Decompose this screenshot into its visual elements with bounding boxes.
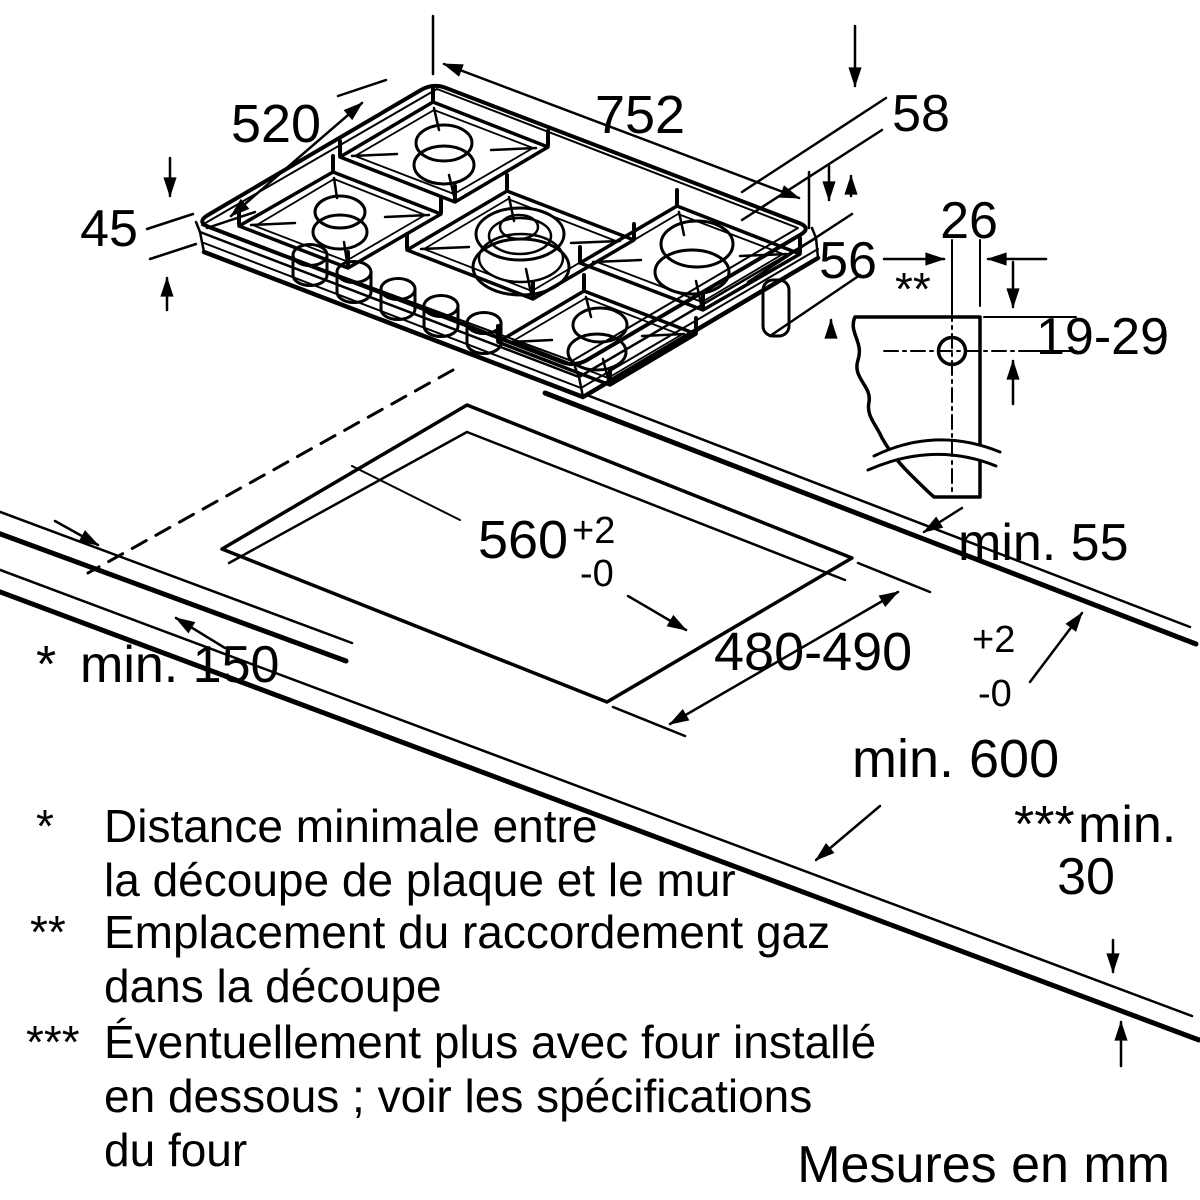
worktop-section-outline xyxy=(853,317,980,497)
units-note: Mesures en mm xyxy=(797,1136,1170,1194)
hob-width-label: 752 xyxy=(595,85,685,145)
side-clearance-marker: * xyxy=(36,636,56,694)
dimension-gas-offset-26: 26 ** xyxy=(884,192,1046,315)
dimension-cutout-width-560: 560 +2 -0 xyxy=(352,466,686,630)
thickness-value: 30 xyxy=(1057,848,1115,906)
footnote-3-line-3: du four xyxy=(104,1124,247,1176)
dimension-gas-height-19-29: 19-29 xyxy=(984,262,1169,404)
worktop-depth-label: min. 600 xyxy=(852,729,1059,789)
gas-offset-label: 26 xyxy=(940,192,998,250)
gas-connection-detail xyxy=(853,280,1028,497)
hob-body-depth-label: 58 xyxy=(892,85,950,143)
dimension-height-45: 45 xyxy=(80,158,196,310)
installation-diagram-page: 752 520 45 58 56 26 ** xyxy=(0,0,1200,1200)
worktop-side-edge-line xyxy=(0,510,352,643)
footnote-2-marker: ** xyxy=(30,906,66,958)
thickness-prefix: min. xyxy=(1078,796,1176,854)
dimension-rear-clearance-min55: min. 55 xyxy=(924,508,1129,572)
cutout-width-label: 560 xyxy=(478,510,568,570)
footnote-1-line-1: Distance minimale entre xyxy=(104,800,597,852)
installation-diagram: 752 520 45 58 56 26 ** xyxy=(0,0,1200,1200)
footnote-1-line-2: la découpe de plaque et le mur xyxy=(104,854,736,906)
footnote-1-marker: * xyxy=(36,800,54,852)
footnotes: * Distance minimale entre la découpe de … xyxy=(26,800,876,1176)
hob-height-label: 45 xyxy=(80,200,138,258)
cutout-width-tol-upper: +2 xyxy=(572,510,615,552)
rear-clearance-label: min. 55 xyxy=(958,514,1129,572)
hob-projection-dashed-line xyxy=(88,370,453,573)
hob-depth-label: 520 xyxy=(231,94,321,154)
footnote-2-line-1: Emplacement du raccordement gaz xyxy=(104,906,830,958)
side-clearance-label: min. 150 xyxy=(80,636,279,694)
dimension-side-clearance-min150: * min. 150 xyxy=(36,521,279,694)
gas-height-range-label: 19-29 xyxy=(1036,308,1169,366)
cutout-depth-label: 480-490 xyxy=(714,622,912,682)
hob-body-clearance-label: 56 xyxy=(819,232,877,290)
dimension-body-depth-58: 58 xyxy=(742,26,950,220)
dimension-cutout-depth-480-490: 480-490 +2 -0 xyxy=(613,563,1015,736)
cutout-width-tol-lower: -0 xyxy=(580,553,614,595)
dimension-worktop-thickness-min30: *** min. 30 xyxy=(1014,796,1176,1066)
worktop-rear-edge-line xyxy=(540,377,1190,627)
cutout-depth-tol-lower: -0 xyxy=(978,673,1012,715)
cutout-depth-tol-upper: +2 xyxy=(972,619,1015,661)
gas-marker-label: ** xyxy=(895,263,931,315)
footnote-3-marker: *** xyxy=(26,1016,80,1068)
footnote-3-line-2: en dessous ; voir les spécifications xyxy=(104,1070,812,1122)
thickness-marker: *** xyxy=(1014,796,1075,854)
footnote-3-line-1: Éventuellement plus avec four installé xyxy=(104,1016,876,1068)
footnote-2-line-2: dans la découpe xyxy=(104,960,442,1012)
